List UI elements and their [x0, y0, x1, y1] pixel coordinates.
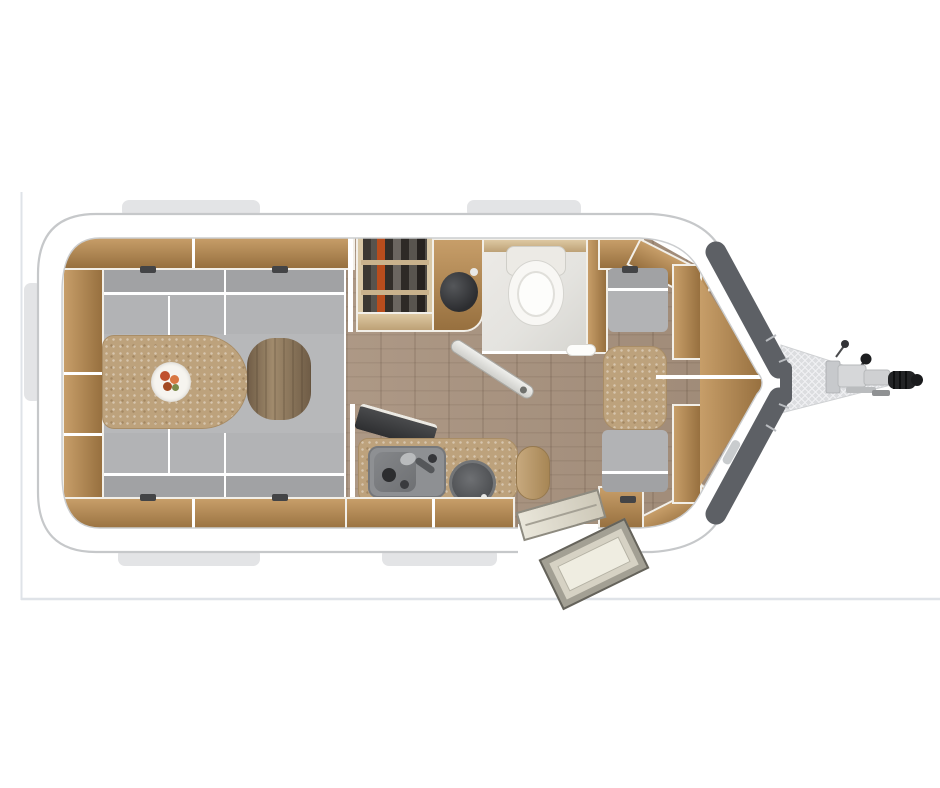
- jockey-crank-knob: [841, 340, 849, 348]
- handbrake-stem: [857, 362, 864, 372]
- side-tab: [24, 283, 42, 401]
- plate-food: [163, 382, 172, 391]
- washbasin-tap: [470, 268, 478, 276]
- sink-faucet-base: [428, 454, 437, 463]
- nose-shelf-column-bottom: [672, 404, 702, 504]
- dinette-seat-front: [602, 430, 668, 492]
- wardrobe-shelf: [356, 312, 434, 332]
- dinette-table: [603, 346, 667, 430]
- shelf-divider: [64, 433, 102, 436]
- shelf-divider: [64, 372, 102, 375]
- wardrobe-rail: [361, 260, 429, 265]
- worktop-end-cap: [516, 446, 550, 500]
- jockey-crank-stem: [836, 346, 844, 357]
- coupling-head-tip: [911, 374, 923, 386]
- plate-food: [172, 384, 179, 391]
- door-handle: [519, 385, 529, 395]
- toilet-seat-ring: [517, 271, 555, 317]
- coupling-foot: [872, 390, 890, 396]
- seat-hinge: [140, 266, 156, 273]
- dinette-seat-rear: [608, 268, 668, 332]
- coupling-body: [838, 365, 866, 387]
- seat-hinge: [272, 494, 288, 501]
- lounge-top-lockers: [62, 236, 355, 270]
- hitch-mount-plate: [826, 361, 840, 393]
- lounge-cushion-seam-bottom: [224, 433, 226, 500]
- inner-step-edge: [525, 504, 597, 526]
- washbasin-bowl: [440, 272, 478, 312]
- locker-divider: [192, 499, 195, 530]
- lounge-bottom-lockers: [62, 497, 355, 532]
- coupling-head-rubber: [888, 371, 916, 389]
- coupling-head-ribs: [894, 371, 906, 389]
- locker-divider: [192, 238, 195, 268]
- partition-seam: [348, 236, 353, 332]
- bolster-cushion: [247, 338, 311, 420]
- plate-food: [170, 375, 179, 384]
- nose-panel-seam: [766, 335, 789, 431]
- toilet-bowl: [508, 260, 564, 326]
- wardrobe-clothes: [363, 238, 427, 314]
- locker-divider: [432, 499, 435, 530]
- kitchen-sink: [368, 446, 446, 498]
- wardrobe-rail: [361, 290, 429, 295]
- lounge-left-shelves: [62, 268, 104, 508]
- nose-shelf-midline: [656, 375, 766, 379]
- drawbar-hatched-chassis: [781, 345, 899, 413]
- roof-tab: [467, 200, 581, 218]
- coupling-shaft: [864, 370, 890, 385]
- sink-drain: [382, 468, 396, 482]
- hitch-assembly: [826, 340, 923, 396]
- roof-tab: [122, 200, 260, 218]
- washroom-wall-end: [566, 344, 596, 356]
- plate-food: [160, 371, 170, 381]
- coupling-underbar: [846, 387, 876, 393]
- roof-tab: [382, 548, 497, 566]
- roof-tab: [118, 548, 260, 566]
- handbrake-knob: [861, 354, 872, 365]
- caravan-floorplan-canvas: [0, 0, 940, 788]
- seat-hinge: [272, 266, 288, 273]
- lounge-cushion-seam-top: [224, 270, 226, 335]
- seat-hinge: [140, 494, 156, 501]
- nose-v-shelf: [700, 278, 762, 486]
- sink-drain-small: [400, 480, 409, 489]
- seat-hinge: [622, 266, 638, 273]
- seat-hinge: [620, 496, 636, 503]
- kitchen-bottom-lockers: [345, 497, 515, 532]
- nose-shelf-column-top: [672, 264, 702, 360]
